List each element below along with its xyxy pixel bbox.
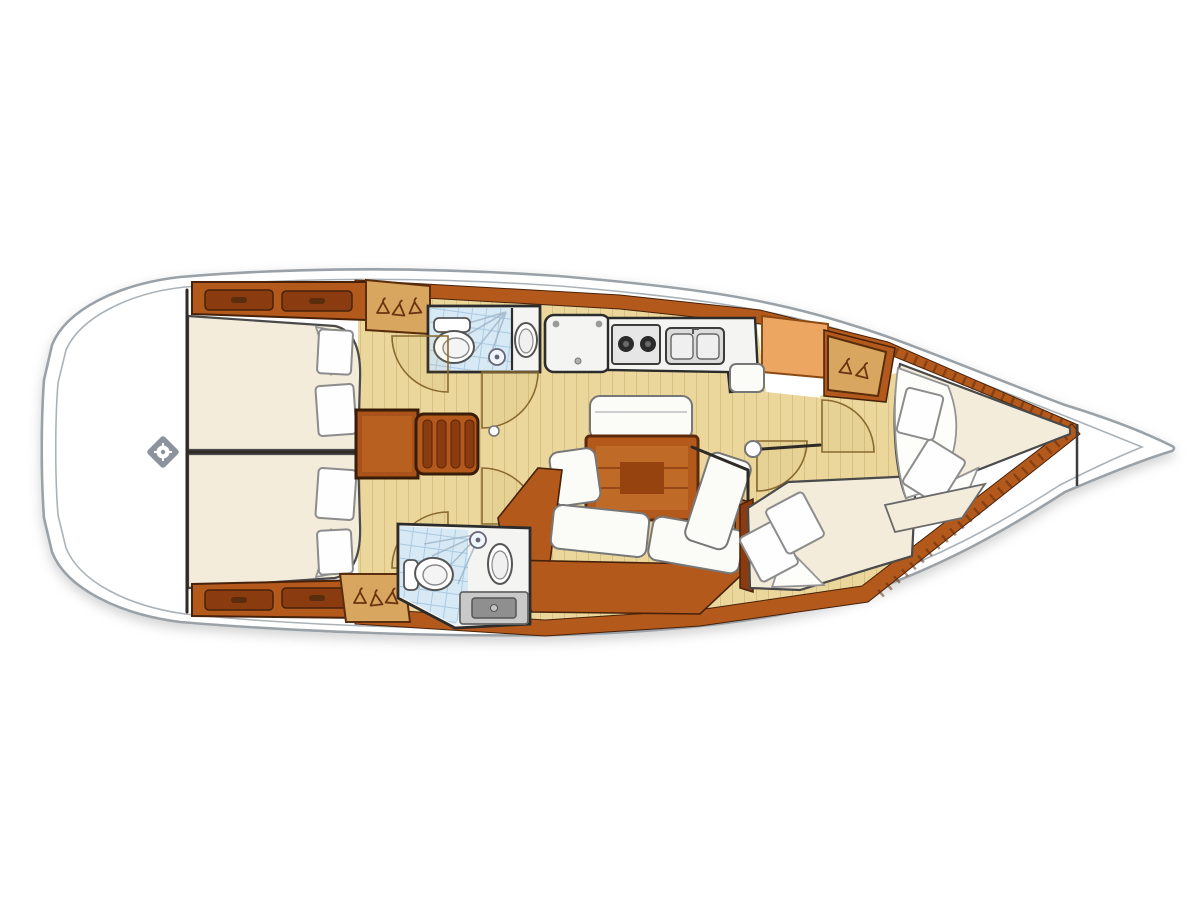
step-rung [437, 420, 446, 468]
toilet-tank [434, 318, 470, 332]
step-rung [465, 420, 474, 468]
icebox-hinge [553, 321, 560, 328]
pillow [317, 529, 353, 575]
pillow [315, 384, 356, 437]
table-center [620, 462, 664, 494]
shower-head-dot [476, 538, 481, 543]
sink-basin-inner [492, 551, 508, 579]
boat-floor-plan-page [0, 0, 1201, 900]
boat-floor-plan [0, 0, 1201, 900]
saloon-bench [590, 396, 692, 440]
engine-box-inner [362, 416, 412, 472]
stove-burner-inner [645, 341, 651, 347]
step-rung [423, 420, 432, 468]
drawer-handle [309, 298, 325, 304]
pillow [315, 468, 356, 521]
shower-drain-dot [495, 355, 500, 360]
vanity-drain [491, 605, 498, 612]
sink-bowl [671, 334, 693, 359]
stove-burner-inner [623, 341, 629, 347]
sink-bowl [697, 334, 719, 359]
icebox-hinge [596, 321, 603, 328]
pillow [317, 329, 353, 375]
toilet-bowl-inner [423, 565, 447, 585]
sofa-cushion [550, 504, 650, 558]
companionway [356, 410, 478, 478]
drawer-handle [309, 595, 325, 601]
cabinet-orange [762, 316, 828, 378]
compression-post [745, 441, 761, 457]
sink-basin-inner [519, 329, 533, 353]
step-rung [451, 420, 460, 468]
drawer-handle [231, 597, 247, 603]
door-knob [489, 426, 499, 436]
drawer-handle [231, 297, 247, 303]
icebox-latch [575, 358, 581, 364]
nav-stool [730, 364, 764, 392]
